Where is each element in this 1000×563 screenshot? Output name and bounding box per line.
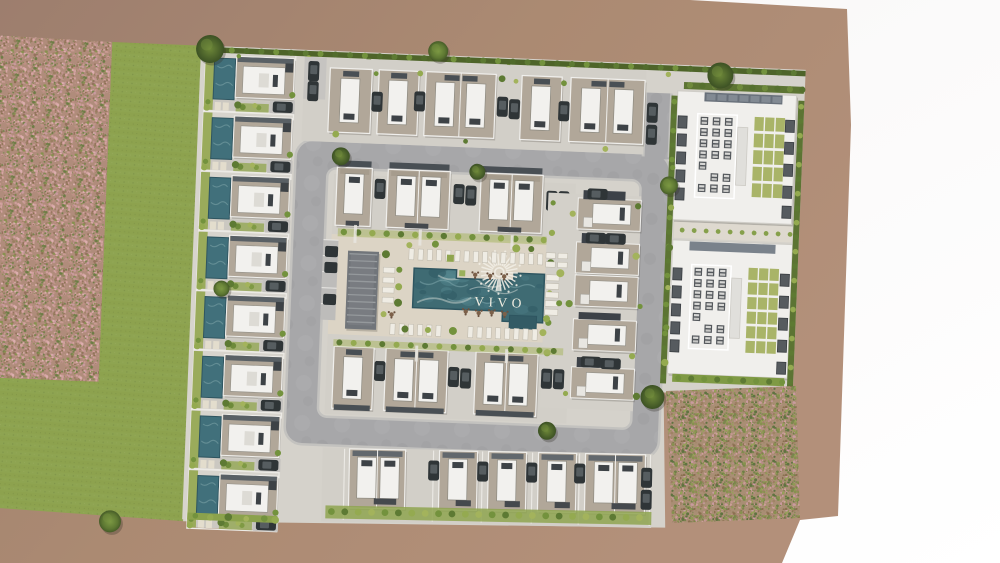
svg-text:VIVO: VIVO	[474, 294, 526, 311]
